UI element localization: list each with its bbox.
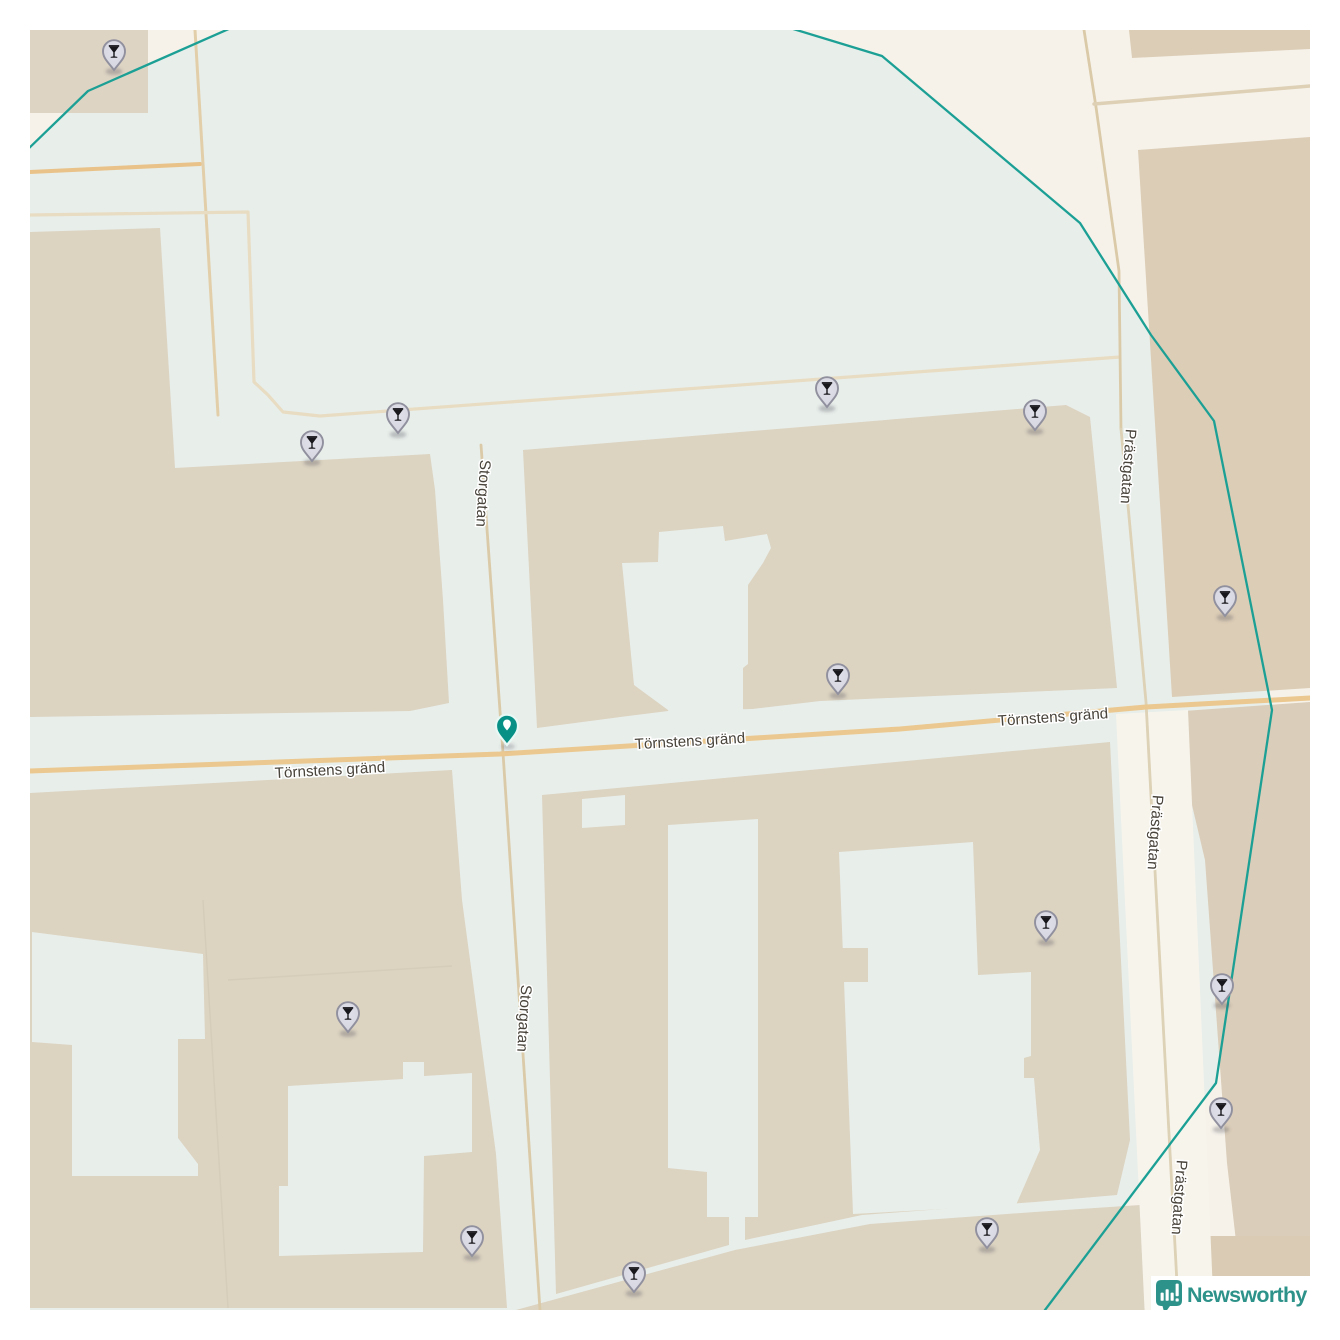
svg-text:Newsworthy: Newsworthy [1187,1283,1307,1307]
